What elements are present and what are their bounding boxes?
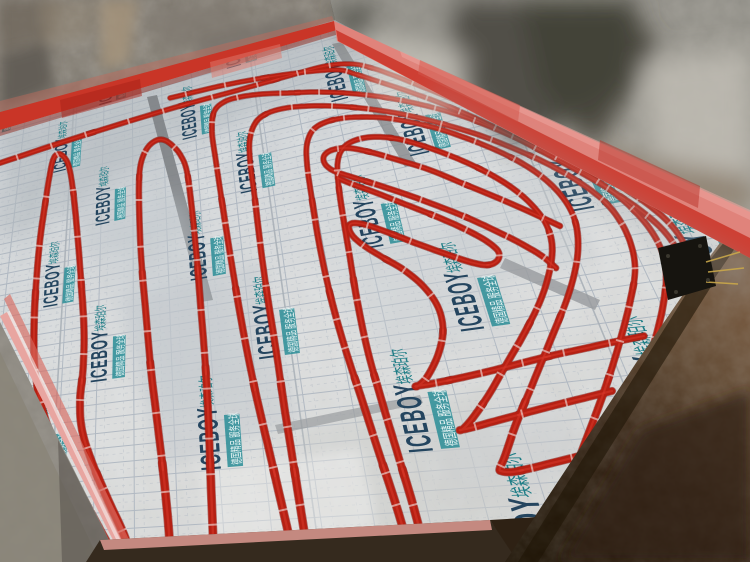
svg-text:埃森珀尔: 埃森珀尔 xyxy=(96,165,110,188)
svg-text:ICEBOY: ICEBOY xyxy=(40,261,65,309)
svg-text:埃森珀尔: 埃森珀尔 xyxy=(56,119,70,139)
svg-text:ICEBOY: ICEBOY xyxy=(85,329,112,384)
svg-text:德国精品 服务全球: 德国精品 服务全球 xyxy=(114,333,127,377)
svg-text:ICEBOY: ICEBOY xyxy=(93,183,115,227)
svg-text:埃森珀尔: 埃森珀尔 xyxy=(46,240,61,265)
svg-text:ICEBOY: ICEBOY xyxy=(230,149,262,196)
svg-text:埃森珀尔: 埃森珀尔 xyxy=(92,304,109,332)
